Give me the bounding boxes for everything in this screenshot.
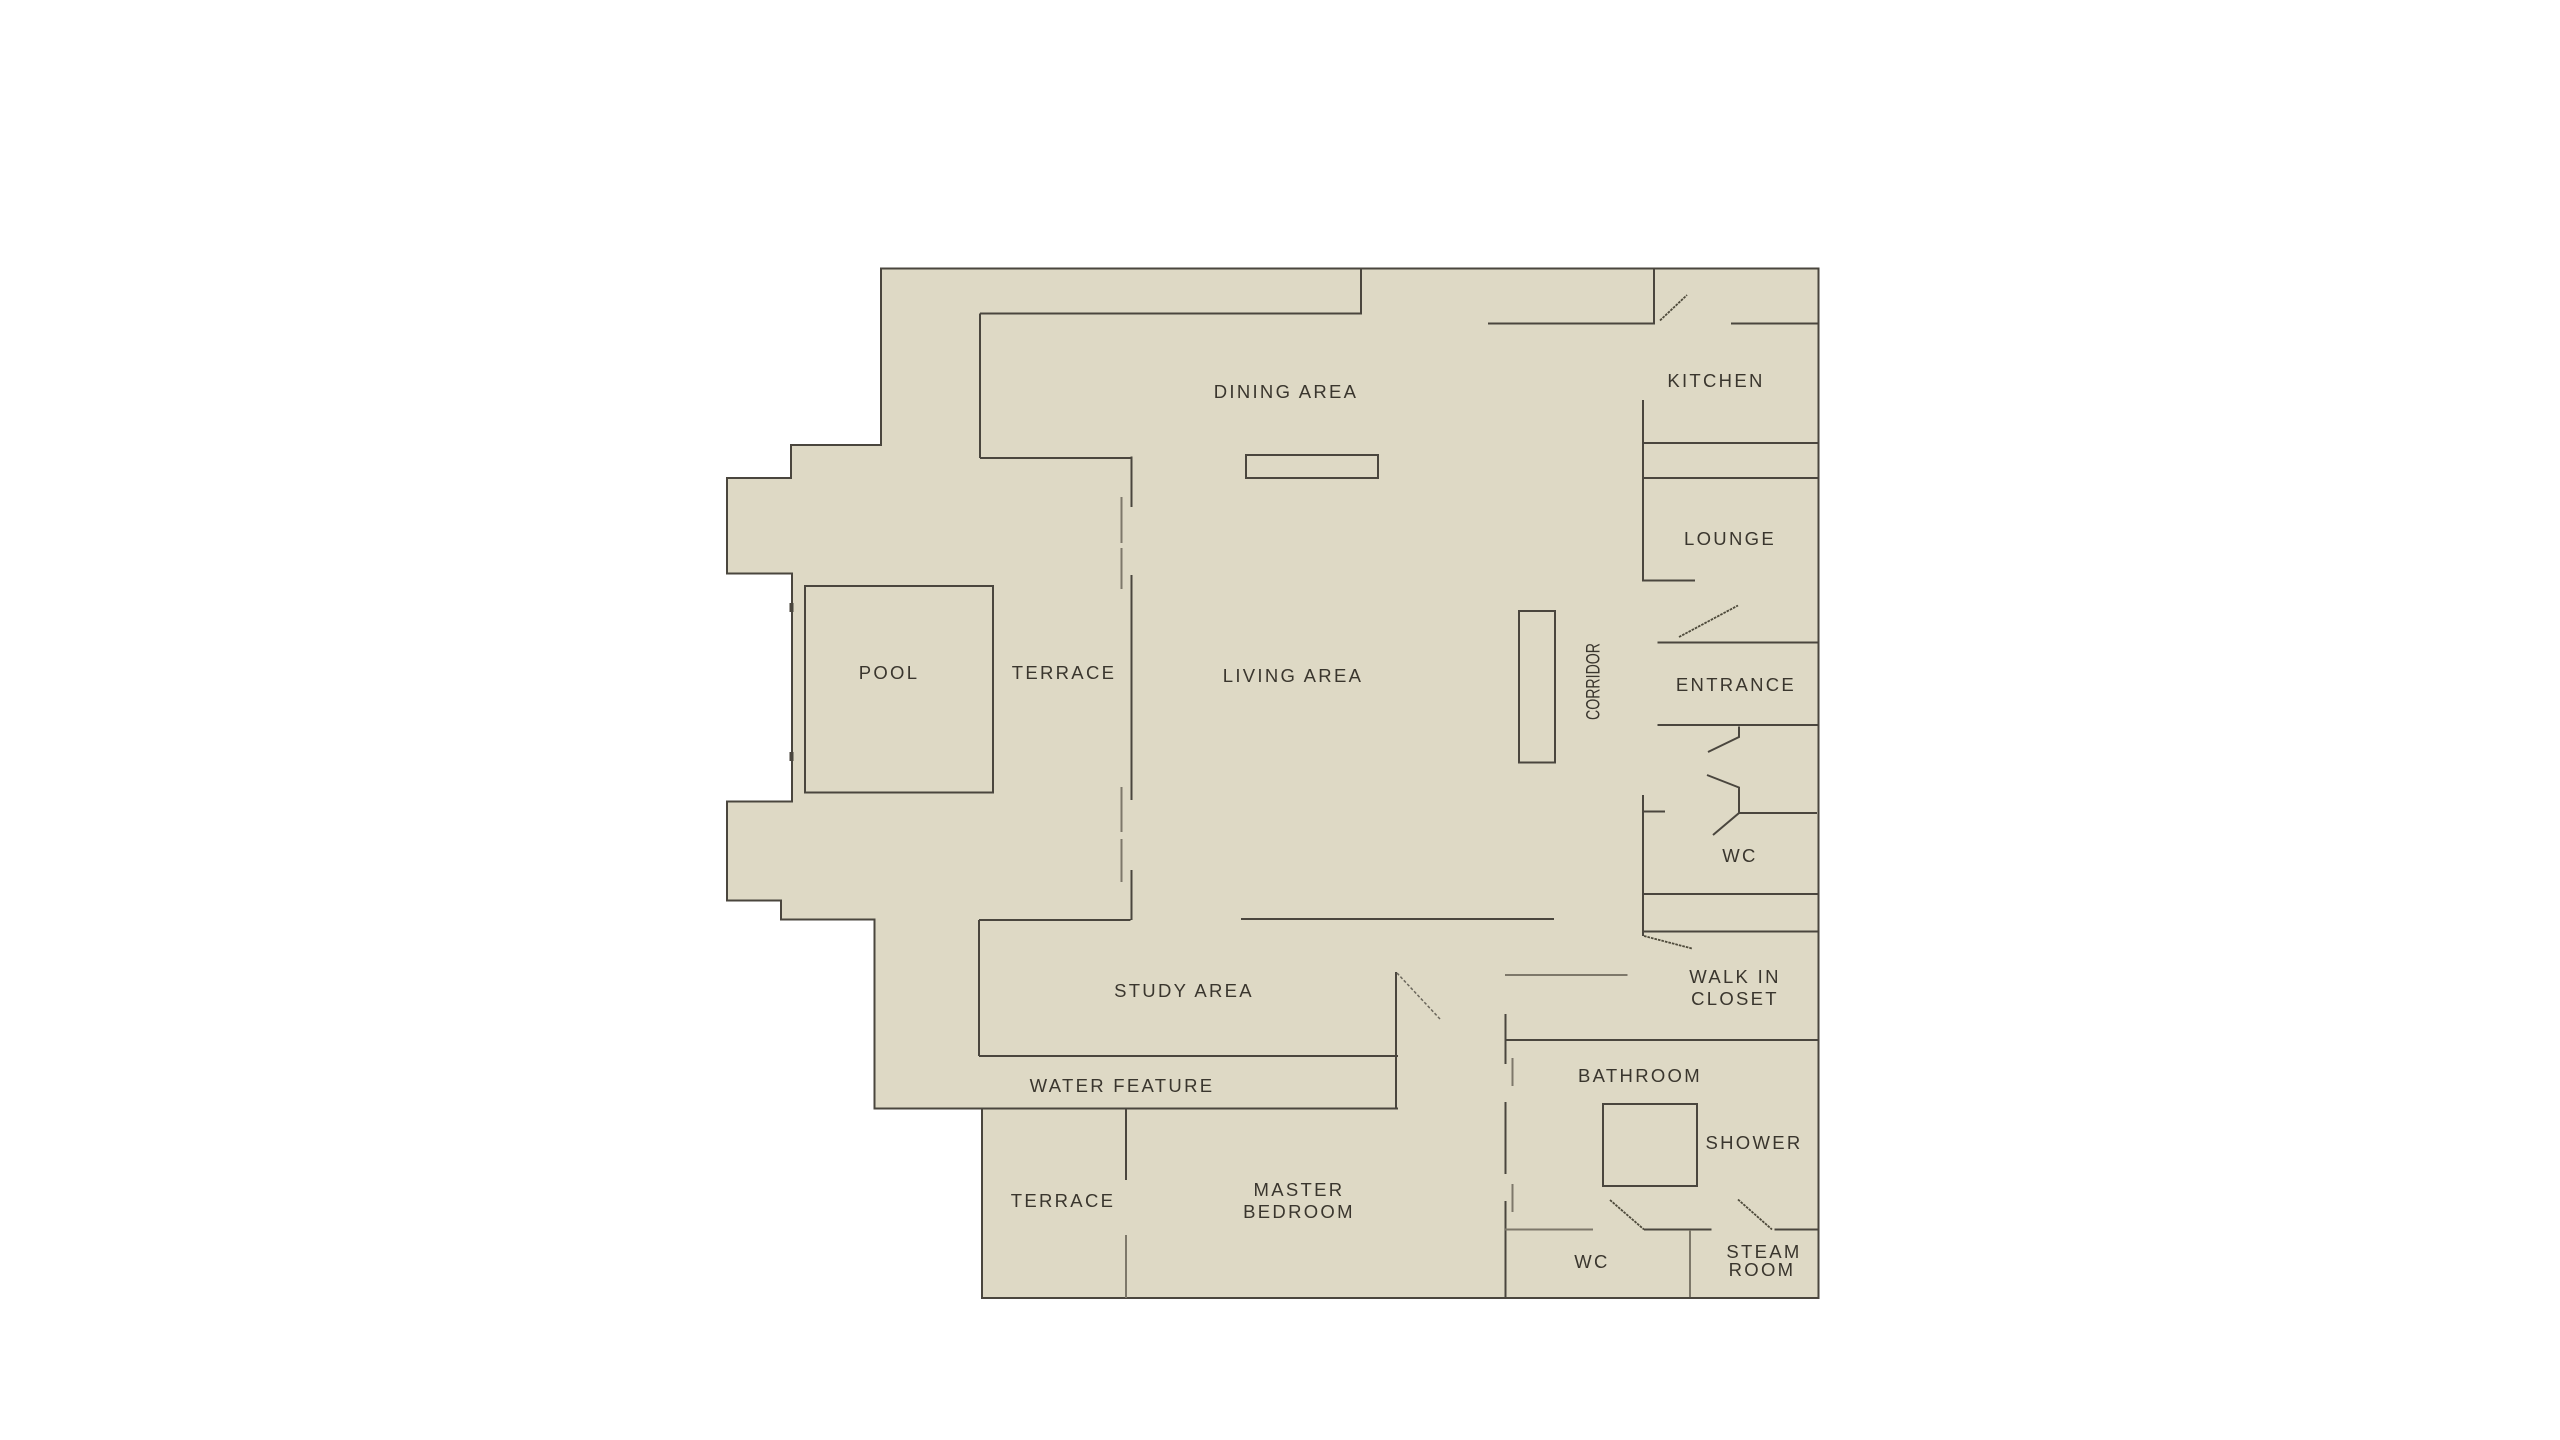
svg-text:TERRACE: TERRACE (1011, 1190, 1116, 1211)
svg-text:LOUNGE: LOUNGE (1684, 528, 1776, 549)
svg-text:ENTRANCE: ENTRANCE (1676, 674, 1796, 695)
svg-text:STUDY AREA: STUDY AREA (1114, 980, 1254, 1001)
svg-text:WATER FEATURE: WATER FEATURE (1030, 1075, 1215, 1096)
svg-text:WALK IN: WALK IN (1689, 966, 1780, 987)
svg-text:CORRIDOR: CORRIDOR (1583, 643, 1605, 720)
svg-text:WC: WC (1722, 845, 1757, 866)
svg-text:CLOSET: CLOSET (1691, 988, 1779, 1009)
svg-text:POOL: POOL (859, 662, 920, 683)
svg-text:LIVING AREA: LIVING AREA (1223, 665, 1363, 686)
svg-text:BATHROOM: BATHROOM (1578, 1065, 1702, 1086)
svg-text:TERRACE: TERRACE (1012, 662, 1117, 683)
svg-text:WC: WC (1574, 1251, 1609, 1272)
svg-text:MASTER: MASTER (1254, 1179, 1345, 1200)
svg-text:SHOWER: SHOWER (1705, 1132, 1802, 1153)
svg-text:DINING AREA: DINING AREA (1214, 381, 1359, 402)
svg-text:KITCHEN: KITCHEN (1667, 370, 1764, 391)
svg-text:ROOM: ROOM (1729, 1259, 1796, 1280)
svg-text:BEDROOM: BEDROOM (1243, 1201, 1355, 1222)
